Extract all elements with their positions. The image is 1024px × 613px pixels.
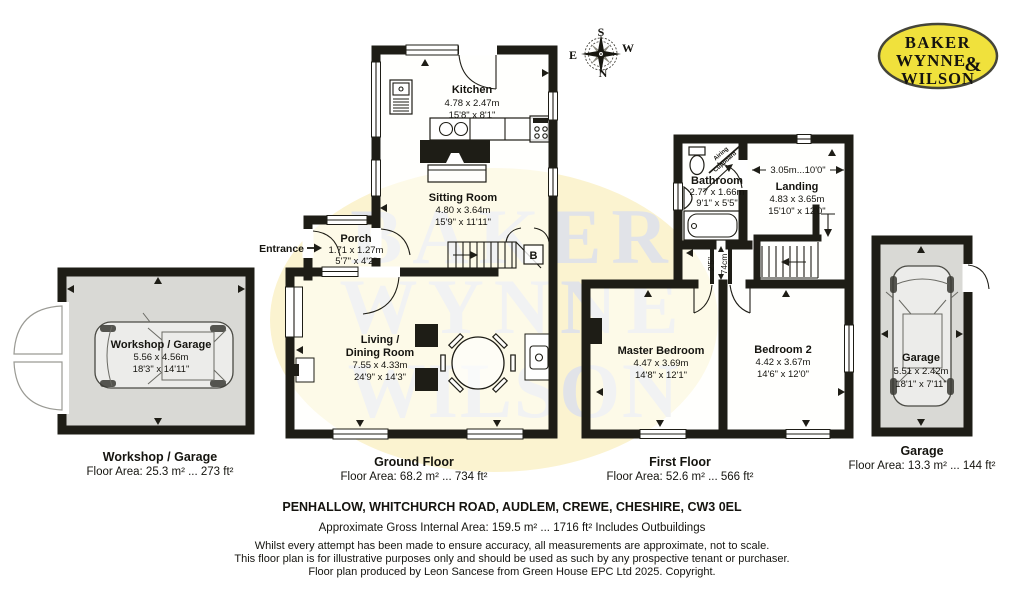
ground-floor-area: Floor Area: 68.2 m² ... 734 ft² — [340, 471, 487, 483]
sitting-room-dims-ft: 15'9" x 11'11" — [435, 217, 491, 228]
dining-table-icon — [441, 334, 515, 392]
chimney-pillar-bottom — [415, 368, 438, 391]
entrance-label: Entrance — [259, 243, 304, 255]
kitchen-sink-icon — [390, 80, 412, 114]
workshop-room-label: Workshop / Garage — [111, 339, 212, 351]
landing-dim-label: 3.05m...10'0" — [770, 165, 825, 176]
workshop-dims-ft: 18'3" x 14'11" — [133, 364, 190, 375]
living-room-label-2: Dining Room — [346, 347, 415, 359]
toilet-icon — [689, 147, 705, 175]
porch-label: Porch — [340, 233, 371, 245]
workshop-area: Floor Area: 25.3 m² ... 273 ft² — [86, 466, 233, 478]
boiler-label: B — [530, 250, 538, 262]
property-address: PENHALLOW, WHITCHURCH ROAD, AUDLEM, CREW… — [282, 500, 742, 514]
master-bedroom-label: Master Bedroom — [618, 345, 705, 357]
sitting-room-dims-m: 4.80 x 3.64m — [436, 205, 491, 216]
compass-n-label: N — [599, 66, 608, 80]
agency-logo: BAKER WYNNE & WILSON — [879, 24, 997, 88]
gross-internal-area: Approximate Gross Internal Area: 159.5 m… — [319, 522, 706, 534]
compass-e-label: E — [569, 48, 577, 62]
passage-dim-cm: 74cm — [719, 254, 729, 275]
bathtub-icon — [684, 211, 741, 240]
credit-line: Floor plan produced by Leon Sancese from… — [308, 566, 715, 578]
garage-door-opening — [963, 264, 974, 292]
garage-dims-ft: 18'1" x 7'11" — [895, 379, 946, 390]
oven-icon — [530, 116, 551, 142]
sitting-room-label: Sitting Room — [429, 192, 498, 204]
bedroom2-dims-ft: 14'6" x 12'0" — [757, 369, 809, 380]
logo-line1: BAKER — [905, 33, 971, 52]
ground-floor-caption: Ground Floor — [374, 455, 454, 469]
logo-line2: WYNNE — [896, 51, 966, 70]
compass-s-label: S — [598, 25, 605, 39]
disclaimer-line-2: This floor plan is for illustrative purp… — [234, 553, 789, 565]
garage-room-label: Garage — [902, 352, 940, 364]
compass-w-label: W — [622, 41, 634, 55]
bedroom2-dims-m: 4.42 x 3.67m — [756, 357, 811, 368]
kitchen-label: Kitchen — [452, 84, 493, 96]
bathroom-dims-ft: 9'1" x 5'5" — [696, 198, 738, 209]
workshop-dims-m: 5.56 x 4.56m — [134, 352, 189, 363]
landing-label: Landing — [776, 181, 819, 193]
disclaimer-line-1: Whilst every attempt has been made to en… — [255, 540, 770, 552]
garage-dims-m: 5.51 x 2.42m — [894, 366, 949, 377]
floorplan-canvas: BAKER WYNNE WILSON S N E W BAKER WYNNE &… — [0, 0, 1024, 613]
workshop-door-leaf-bottom — [14, 362, 62, 410]
chimney-pillar-top — [415, 324, 438, 347]
living-room-label-1: Living / — [361, 334, 400, 346]
kitchen-dims-m: 4.78 x 2.47m — [445, 98, 500, 109]
master-bedroom-dims-m: 4.47 x 3.69m — [634, 358, 689, 369]
landing-dims-ft: 15'10" x 12'0" — [768, 206, 825, 217]
bathroom-dims-m: 2.77 x 1.66m — [690, 187, 745, 198]
boiler-box: B — [524, 245, 543, 264]
master-bedroom-dims-ft: 14'8" x 12'1" — [635, 370, 687, 381]
logo-line3: WILSON — [901, 69, 975, 88]
stove-chimney — [420, 140, 490, 182]
living-room-dims-ft: 24'9" x 14'3" — [354, 372, 406, 383]
first-floor-area: Floor Area: 52.6 m² ... 566 ft² — [606, 471, 753, 483]
first-floor-caption: First Floor — [649, 455, 711, 469]
compass-rose-icon: S N E W — [569, 25, 634, 80]
porch-dims-ft: 5'7" x 4'2" — [335, 256, 377, 267]
workshop-door-leaf-top — [14, 306, 62, 354]
passage-dim-ft: 2'5" — [706, 257, 716, 271]
living-room-dims-m: 7.55 x 4.33m — [353, 360, 408, 371]
bathroom-label: Bathroom — [691, 175, 743, 187]
landing-dims-m: 4.83 x 3.65m — [770, 194, 825, 205]
garage-area: Floor Area: 13.3 m² ... 144 ft² — [848, 460, 995, 472]
workshop-caption: Workshop / Garage — [103, 450, 217, 464]
footer: PENHALLOW, WHITCHURCH ROAD, AUDLEM, CREW… — [234, 500, 789, 578]
porch-dims-m: 1.71 x 1.27m — [329, 245, 384, 256]
bedroom2-label: Bedroom 2 — [754, 344, 811, 356]
garage-caption: Garage — [900, 444, 943, 458]
kitchen-dims-ft: 15'8" x 8'1" — [449, 110, 496, 121]
floorplan-svg: BAKER WYNNE WILSON S N E W BAKER WYNNE &… — [0, 0, 1024, 613]
